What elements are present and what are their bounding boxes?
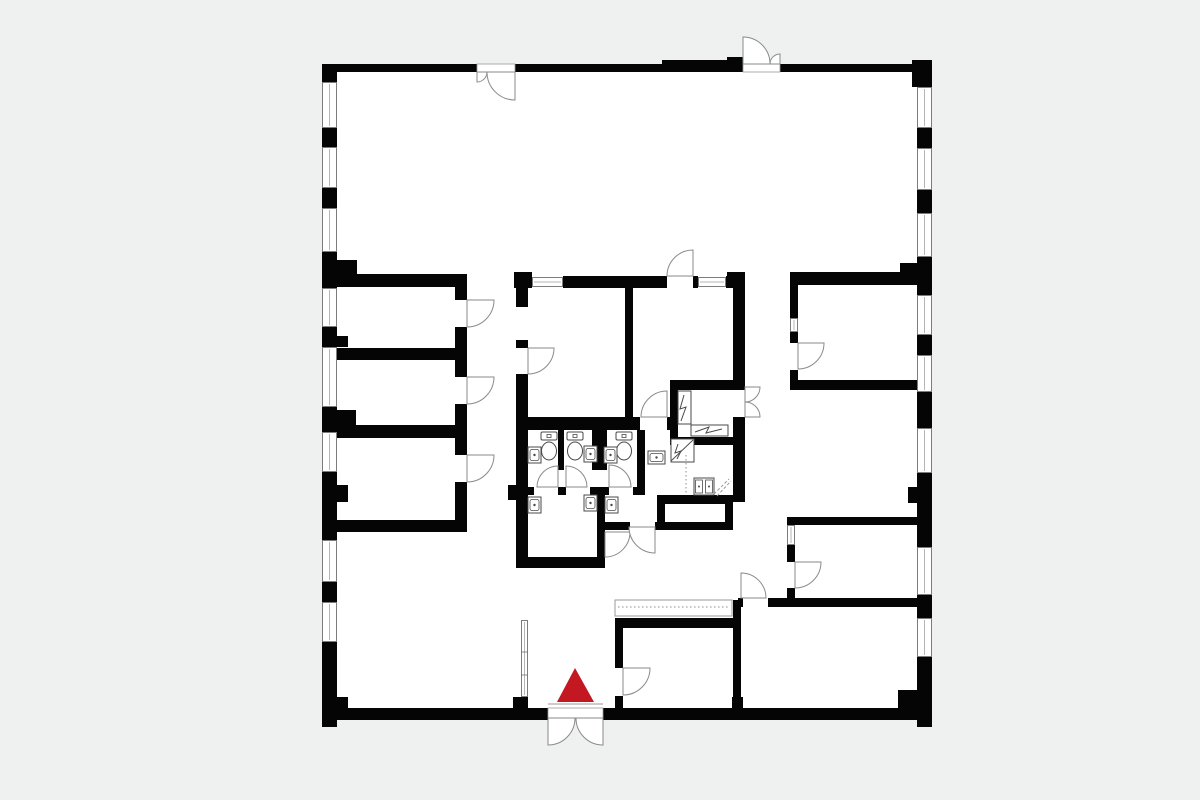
toilet-icon [541, 432, 557, 440]
floor-plan [0, 0, 1200, 800]
toilet-icon [567, 432, 583, 440]
reception-counter [615, 600, 732, 616]
kitchen-sink-icon [694, 478, 714, 495]
kitchen-sink [694, 478, 714, 495]
floorplan-canvas [0, 0, 1200, 800]
toilet-icon [616, 432, 632, 440]
